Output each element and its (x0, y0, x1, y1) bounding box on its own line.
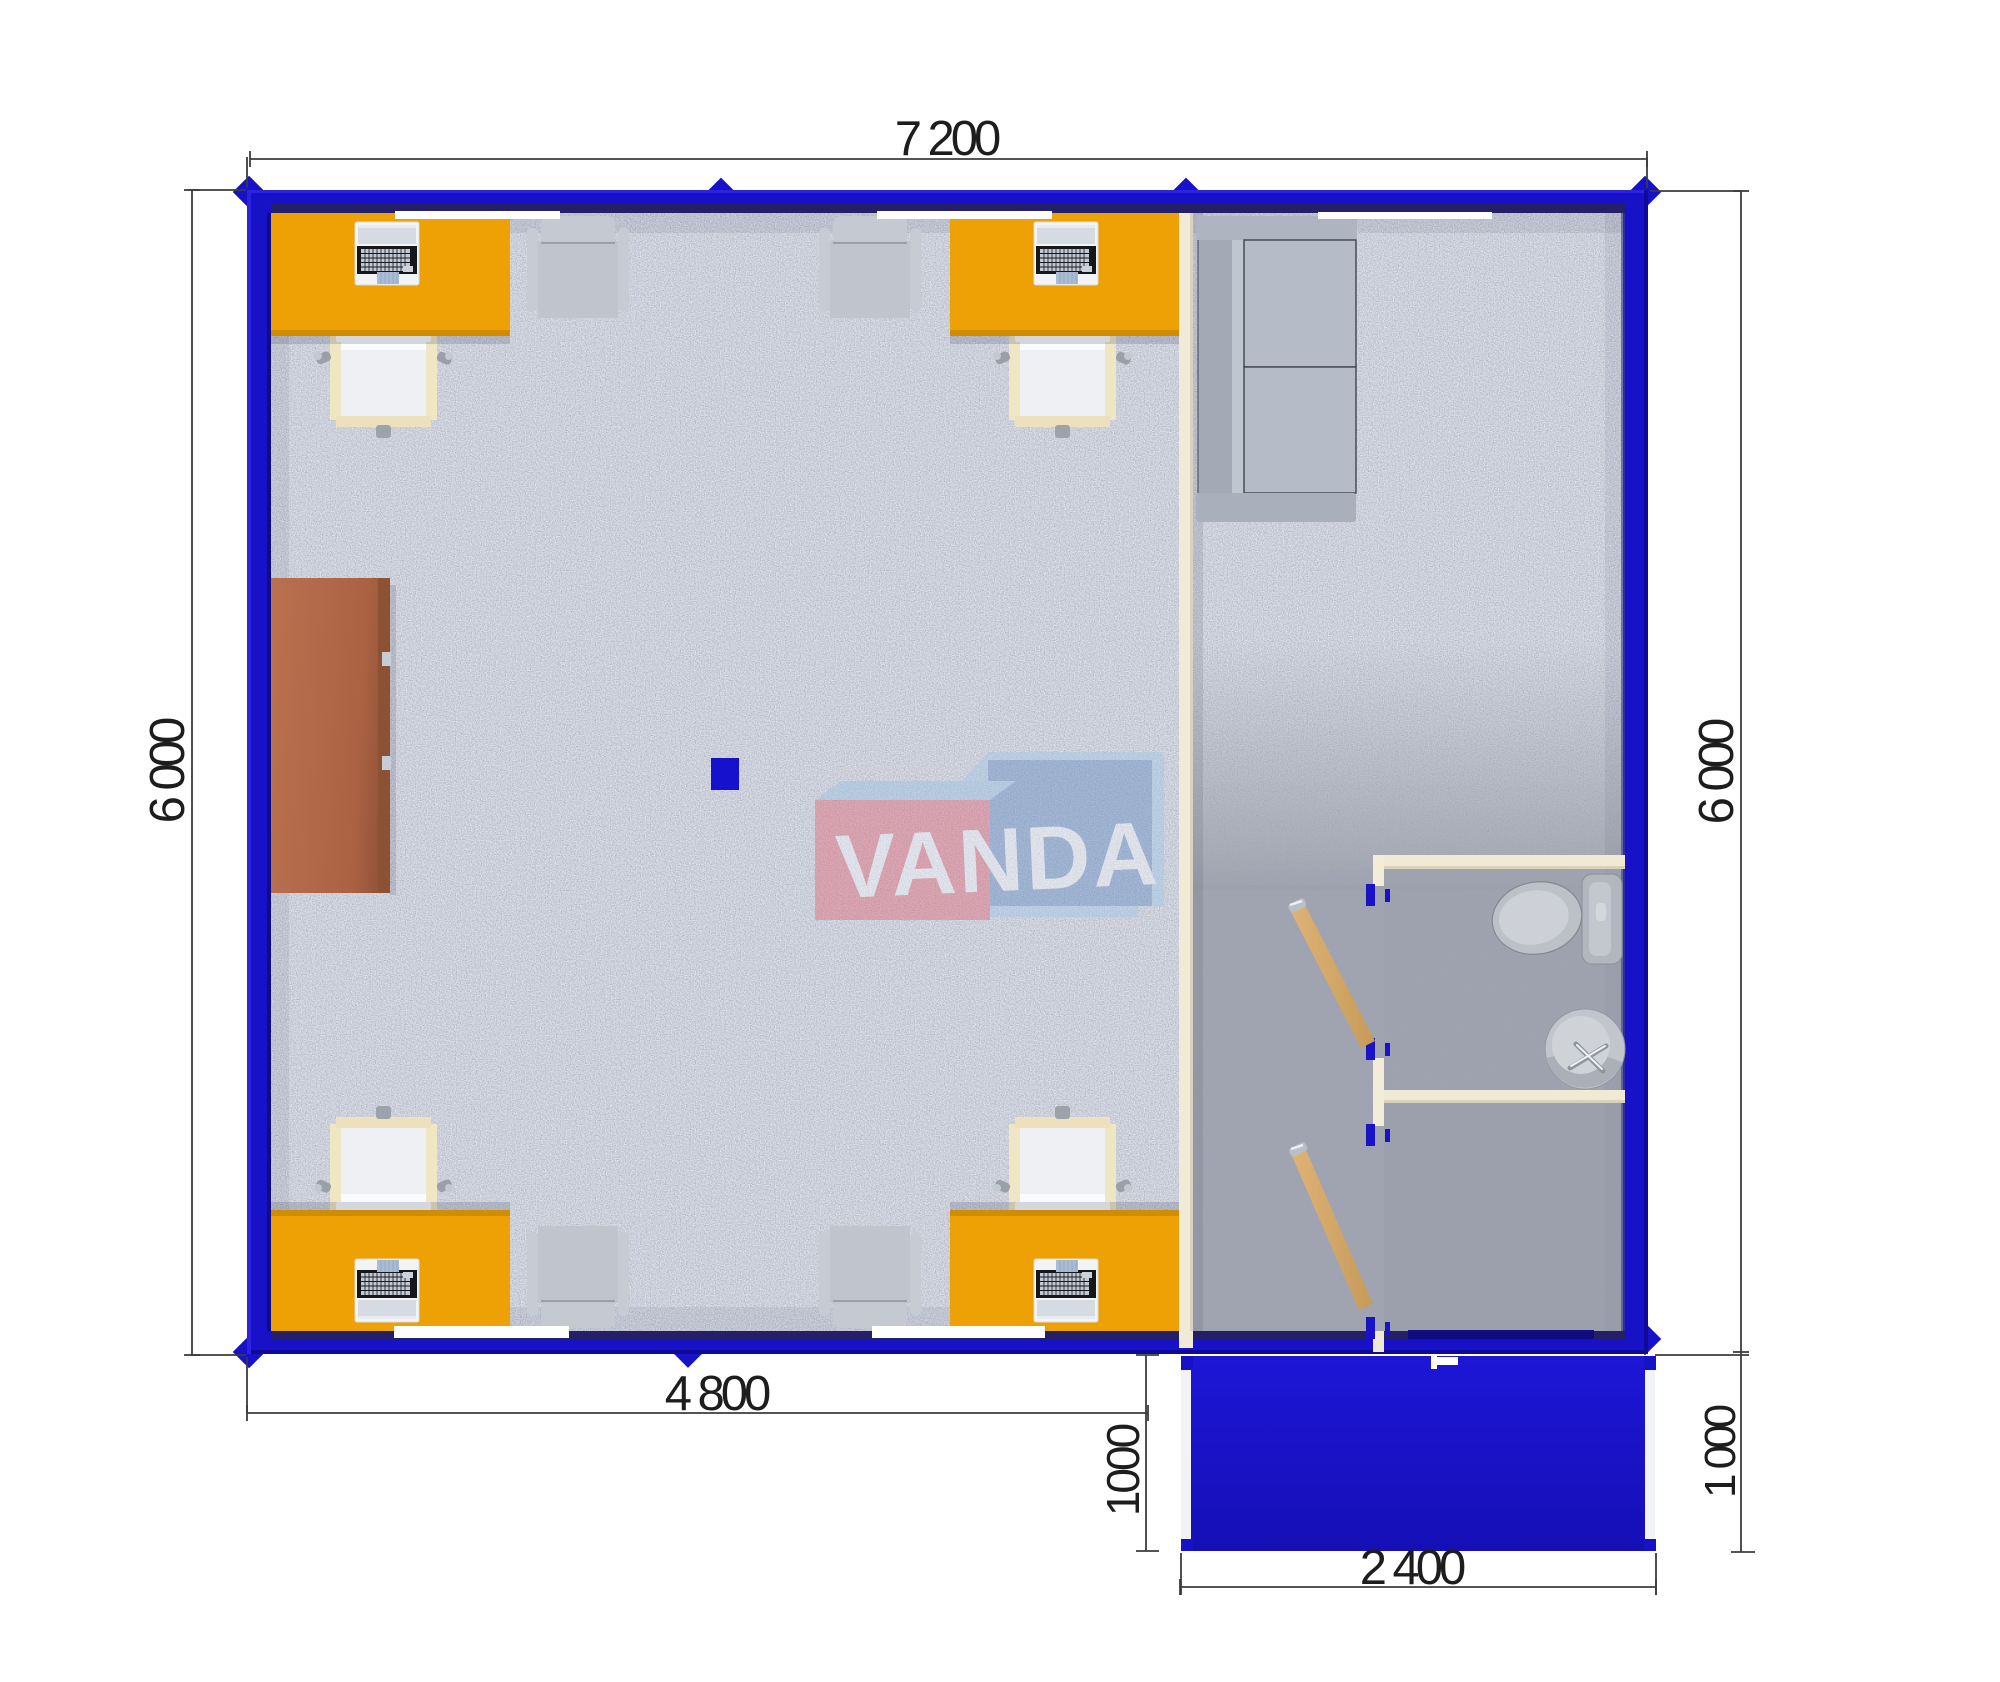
svg-text:1000: 1000 (1097, 1424, 1149, 1516)
svg-text:6 000: 6 000 (141, 718, 195, 823)
svg-text:6 000: 6 000 (1690, 719, 1744, 824)
svg-text:VANDA: VANDA (834, 804, 1160, 918)
svg-text:7 200: 7 200 (895, 112, 1000, 166)
svg-text:1 000: 1 000 (1696, 1405, 1745, 1498)
svg-text:4 800: 4 800 (665, 1367, 770, 1421)
svg-text:2 400: 2 400 (1360, 1541, 1465, 1595)
